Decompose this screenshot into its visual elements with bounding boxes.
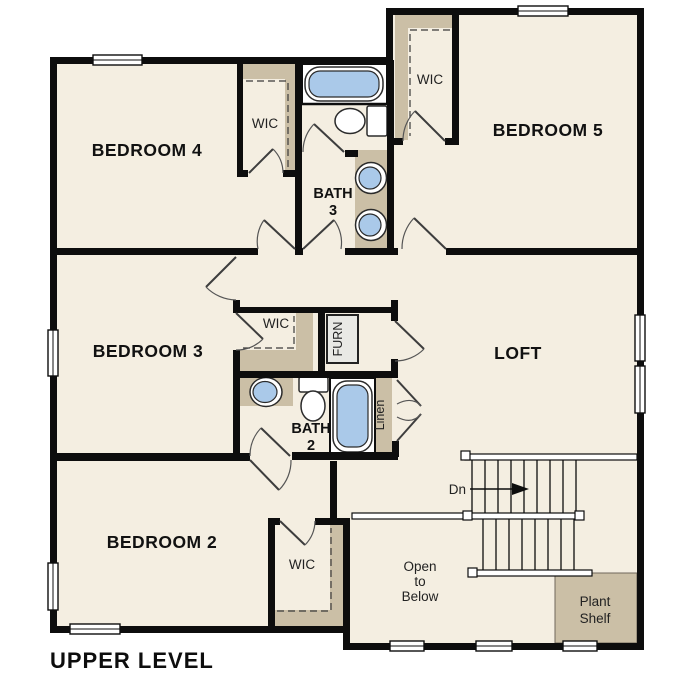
stairs-down-label: Dn bbox=[449, 482, 466, 497]
railing-post-1 bbox=[461, 451, 470, 460]
bedroom4-wic-label: WIC bbox=[252, 116, 278, 131]
wall-bedroom4-bath3 bbox=[295, 57, 302, 255]
railing-post-4 bbox=[468, 568, 477, 577]
wall-bedroom3-right-a bbox=[233, 300, 240, 313]
window-bedroom3-left bbox=[48, 330, 58, 376]
window-bedroom4-top bbox=[93, 55, 142, 65]
bath2-label-line1: BATH bbox=[291, 421, 330, 437]
plant-shelf-line1: Plant bbox=[580, 594, 611, 609]
stair-railing-top bbox=[465, 454, 637, 460]
window-bedroom2-bottom bbox=[70, 624, 120, 634]
wall-exterior-bump-left bbox=[386, 8, 393, 64]
bedroom2-wic-shelf-bottom bbox=[275, 610, 343, 626]
window-loft-right-2 bbox=[635, 366, 645, 413]
stair-railing-bottom bbox=[472, 570, 592, 576]
wall-bath2-top bbox=[233, 371, 398, 378]
railing-post-2 bbox=[463, 511, 472, 520]
wall-loft-bedroom5 bbox=[446, 248, 637, 255]
furnace-label: FURN bbox=[331, 322, 345, 357]
wall-bedroom5-wic-bottom-b bbox=[445, 138, 459, 145]
bath3-sink1-basin bbox=[359, 167, 381, 189]
bedroom4-label: BEDROOM 4 bbox=[92, 140, 202, 160]
wall-hall-north-a bbox=[53, 248, 258, 255]
open-to-below-line1: Open bbox=[403, 559, 436, 574]
wall-wic3-furnace-top bbox=[240, 307, 398, 313]
bedroom5-label: BEDROOM 5 bbox=[493, 120, 603, 140]
wall-bedroom4-wic-bottom-a bbox=[237, 170, 248, 177]
wall-bath3-compartment-stub bbox=[345, 150, 358, 157]
window-loft-right-1 bbox=[635, 315, 645, 361]
bath2-tub-icon bbox=[337, 385, 368, 447]
bath3-toilet-bowl bbox=[335, 109, 365, 134]
page-title: UPPER LEVEL bbox=[50, 648, 214, 673]
bath3-tub-icon bbox=[309, 71, 379, 97]
wall-bedroom3-right-b bbox=[233, 350, 240, 455]
bedroom2-label: BEDROOM 2 bbox=[107, 532, 217, 552]
open-to-below-line2: to bbox=[414, 574, 425, 589]
bath3-toilet-tank bbox=[367, 106, 387, 136]
wall-bedroom2-hall bbox=[330, 461, 337, 518]
railing-post-3 bbox=[575, 511, 584, 520]
open-to-below-line3: Below bbox=[402, 589, 439, 604]
window-bedroom2-left bbox=[48, 563, 58, 610]
plant-shelf-line2: Shelf bbox=[580, 611, 611, 626]
wall-furnace-right-a bbox=[391, 300, 398, 321]
bedroom4-wic-shelf-side bbox=[285, 64, 295, 172]
window-bedroom5-top bbox=[518, 6, 568, 16]
wall-bedroom4-wic-left bbox=[237, 57, 243, 174]
bedroom3-wic-shelf-bottom bbox=[240, 350, 296, 372]
loft-label: LOFT bbox=[494, 343, 542, 363]
bedroom2-wic-label: WIC bbox=[289, 557, 315, 572]
bedroom3-label: BEDROOM 3 bbox=[93, 341, 203, 361]
bedroom3-wic-shelf-side bbox=[296, 313, 313, 372]
window-bottom-2 bbox=[476, 641, 512, 651]
bath2-toilet-tank bbox=[299, 377, 328, 392]
wall-bedroom2-wic-left bbox=[268, 518, 275, 626]
bedroom5-wic-shelf-side bbox=[395, 15, 408, 140]
bath3-label-line2: 3 bbox=[329, 203, 337, 219]
window-bottom-3 bbox=[563, 641, 597, 651]
wall-bedroom5-wic-right bbox=[452, 13, 459, 145]
bedroom2-wic-shelf-side bbox=[330, 525, 343, 613]
bath2-label-line2: 2 bbox=[307, 438, 315, 454]
bedroom5-wic-label: WIC bbox=[417, 72, 443, 87]
bath2-toilet-bowl bbox=[301, 391, 325, 421]
wall-furnace-right-b bbox=[391, 359, 398, 378]
bath2-sink-basin bbox=[253, 382, 277, 403]
wall-openbelow-left bbox=[343, 518, 350, 622]
wall-bedroom2-top bbox=[50, 453, 250, 461]
wall-furnace-left bbox=[318, 313, 325, 372]
wall-bedroom5-wic-bottom-a bbox=[387, 138, 403, 145]
bedroom5-wic-shelf-top bbox=[395, 15, 452, 28]
wall-bath3-bedroom5 bbox=[387, 60, 394, 255]
linen-label: Linen bbox=[373, 400, 387, 431]
floor-plan-drawing: BEDROOM 4 BEDROOM 5 BEDROOM 3 LOFT BEDRO… bbox=[0, 0, 687, 687]
floor-plan-page: BEDROOM 4 BEDROOM 5 BEDROOM 3 LOFT BEDRO… bbox=[0, 0, 687, 687]
wall-exterior-top-right bbox=[386, 8, 644, 15]
bedroom3-wic-label: WIC bbox=[263, 316, 289, 331]
window-bottom-1 bbox=[390, 641, 424, 651]
bath3-sink2-basin bbox=[359, 214, 381, 236]
bath3-label-line1: BATH bbox=[313, 186, 352, 202]
